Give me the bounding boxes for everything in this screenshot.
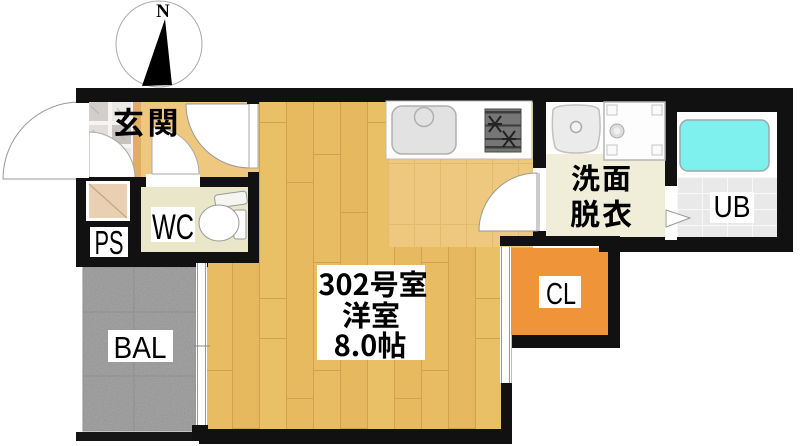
svg-text:BAL: BAL [114,330,167,365]
svg-text:CL: CL [546,276,576,311]
svg-text:PS: PS [95,224,124,261]
svg-text:UB: UB [714,189,751,224]
svg-text:N: N [156,1,170,22]
svg-text:WC: WC [152,208,194,247]
